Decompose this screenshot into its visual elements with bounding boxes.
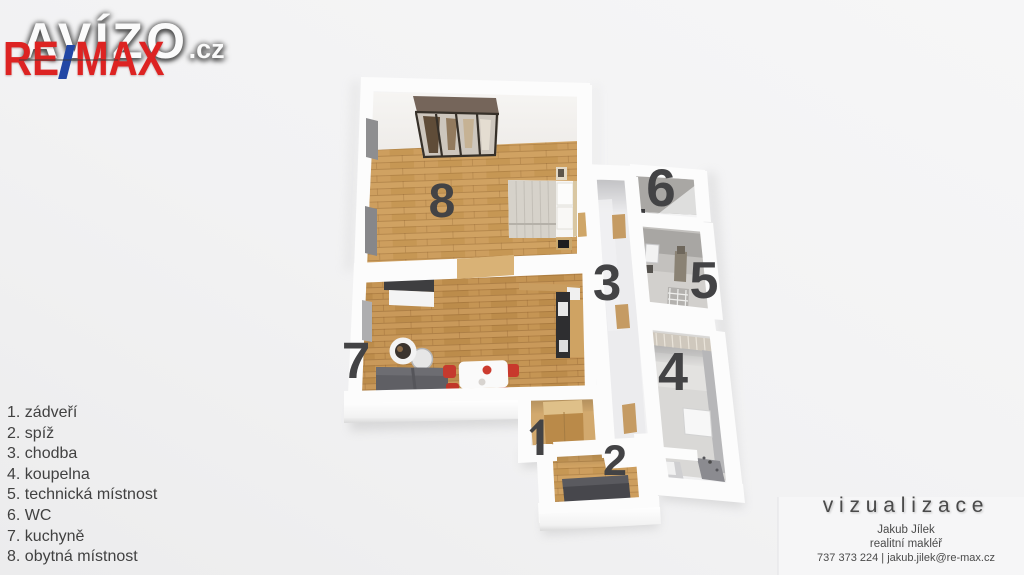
svg-text:7: 7 [342,332,370,389]
svg-text:5: 5 [690,252,719,310]
svg-text:6: 6 [646,159,675,218]
svg-text:4: 4 [658,342,688,402]
svg-text:2: 2 [603,437,627,485]
svg-text:8: 8 [429,175,456,228]
svg-text:3: 3 [593,254,621,311]
